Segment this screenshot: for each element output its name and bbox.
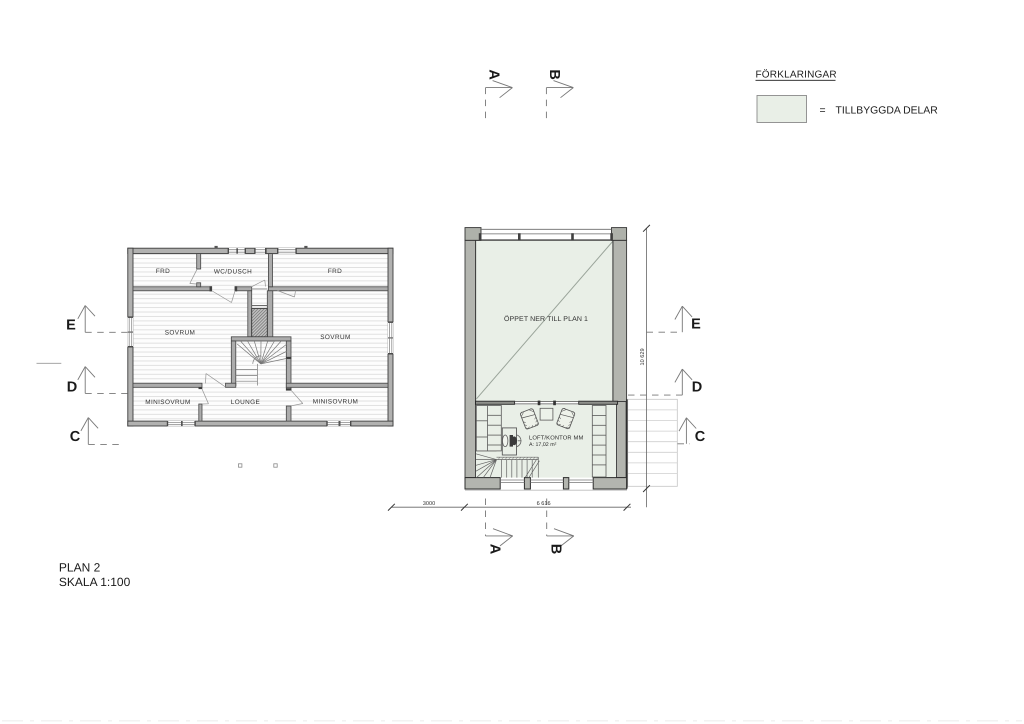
svg-text:C: C	[70, 429, 81, 445]
svg-text:A: A	[487, 544, 503, 555]
svg-text:LOFT/KONTOR MM: LOFT/KONTOR MM	[529, 434, 584, 441]
svg-text:PLAN 2: PLAN 2	[59, 560, 101, 574]
svg-text:A: 17,02 m²: A: 17,02 m²	[529, 442, 557, 448]
svg-text:SOVRUM: SOVRUM	[320, 334, 350, 341]
svg-text:10 629: 10 629	[640, 348, 646, 365]
svg-text:E: E	[66, 317, 76, 333]
svg-text:C: C	[695, 429, 706, 445]
svg-text:ÖPPET NER TILL PLAN 1: ÖPPET NER TILL PLAN 1	[504, 315, 588, 323]
svg-text:E: E	[691, 317, 701, 333]
svg-text:LOUNGE: LOUNGE	[231, 399, 260, 406]
svg-text:TILLBYGGDA DELAR: TILLBYGGDA DELAR	[836, 106, 939, 117]
svg-text:FRD: FRD	[156, 268, 170, 275]
svg-text:B: B	[548, 544, 564, 554]
svg-text:SOVRUM: SOVRUM	[165, 329, 195, 336]
svg-text:B: B	[546, 69, 562, 79]
svg-text:A: A	[486, 69, 502, 80]
svg-text:6 616: 6 616	[537, 501, 551, 507]
svg-text:FRD: FRD	[328, 268, 342, 275]
svg-text:D: D	[692, 379, 702, 395]
svg-text:3000: 3000	[423, 501, 435, 507]
svg-text:SKALA 1:100: SKALA 1:100	[59, 575, 131, 589]
svg-text:FÖRKLARINGAR: FÖRKLARINGAR	[756, 69, 837, 81]
svg-text:WC/DUSCH: WC/DUSCH	[214, 268, 252, 275]
svg-text:D: D	[67, 379, 77, 395]
svg-text:MINISOVRUM: MINISOVRUM	[145, 399, 191, 406]
svg-text:=: =	[820, 106, 826, 117]
svg-text:MINISOVRUM: MINISOVRUM	[313, 398, 359, 405]
